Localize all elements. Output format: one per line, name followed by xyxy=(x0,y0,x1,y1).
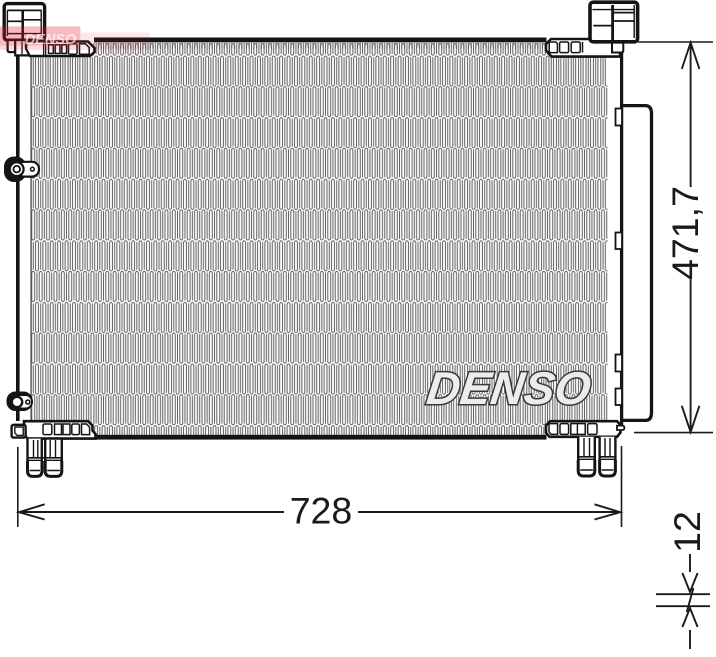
svg-text:DENSO: DENSO xyxy=(25,32,77,48)
svg-text:DENSO: DENSO xyxy=(424,362,594,414)
svg-text:471,7: 471,7 xyxy=(664,186,706,280)
svg-text:728: 728 xyxy=(290,490,353,532)
svg-text:12: 12 xyxy=(666,511,708,553)
